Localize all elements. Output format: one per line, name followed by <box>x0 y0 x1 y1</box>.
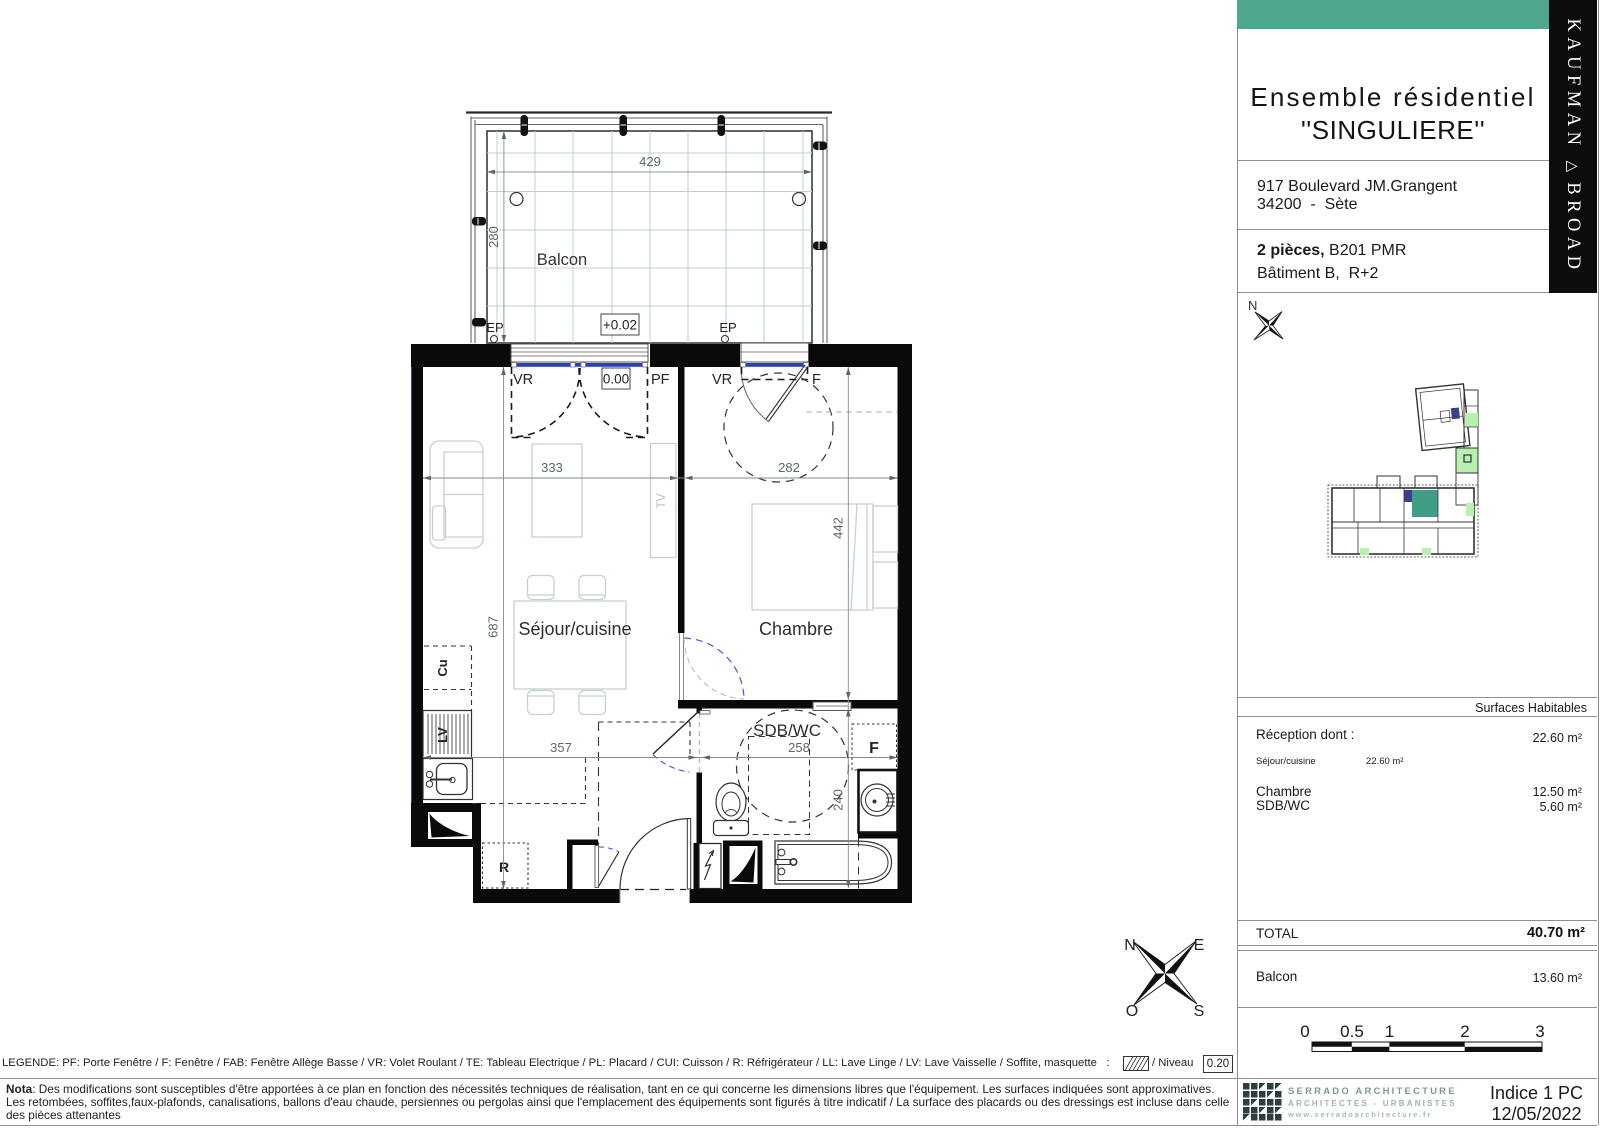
svg-text:333: 333 <box>541 460 563 475</box>
svg-text:VR: VR <box>712 372 732 388</box>
svg-text:240: 240 <box>831 789 846 811</box>
svg-text:O: O <box>1126 1003 1138 1020</box>
svg-text:SDB/WC: SDB/WC <box>753 721 821 740</box>
svg-text:S: S <box>1194 1003 1205 1020</box>
svg-text:3: 3 <box>1535 1022 1544 1041</box>
svg-text:LV: LV <box>435 727 450 743</box>
svg-text:442: 442 <box>831 517 846 539</box>
svg-text:280: 280 <box>486 226 501 248</box>
svg-text:F: F <box>812 372 821 388</box>
svg-text:N: N <box>1248 298 1257 313</box>
svg-text:F: F <box>869 740 879 757</box>
svg-text:258: 258 <box>788 740 810 755</box>
svg-text:VR: VR <box>513 372 533 388</box>
svg-text:687: 687 <box>486 616 501 638</box>
svg-text:357: 357 <box>550 740 572 755</box>
svg-text:+0.02: +0.02 <box>603 318 637 333</box>
svg-text:0.00: 0.00 <box>603 372 629 387</box>
svg-text:Cu: Cu <box>435 659 450 676</box>
svg-text:0.5: 0.5 <box>1340 1022 1364 1041</box>
svg-text:EP: EP <box>486 320 503 335</box>
svg-text:1: 1 <box>1385 1022 1394 1041</box>
svg-text:R: R <box>499 859 509 875</box>
svg-text:N: N <box>1124 937 1136 954</box>
svg-text:429: 429 <box>639 154 661 169</box>
svg-text:0: 0 <box>1300 1022 1309 1041</box>
svg-text:TV: TV <box>654 493 668 508</box>
svg-text:282: 282 <box>778 460 800 475</box>
svg-text:PF: PF <box>651 372 670 388</box>
svg-text:E: E <box>1194 937 1205 954</box>
svg-text:Chambre: Chambre <box>759 619 833 639</box>
svg-text:Séjour/cuisine: Séjour/cuisine <box>518 619 631 639</box>
svg-text:Balcon: Balcon <box>537 251 587 269</box>
svg-text:EP: EP <box>719 320 736 335</box>
svg-text:2: 2 <box>1460 1022 1469 1041</box>
